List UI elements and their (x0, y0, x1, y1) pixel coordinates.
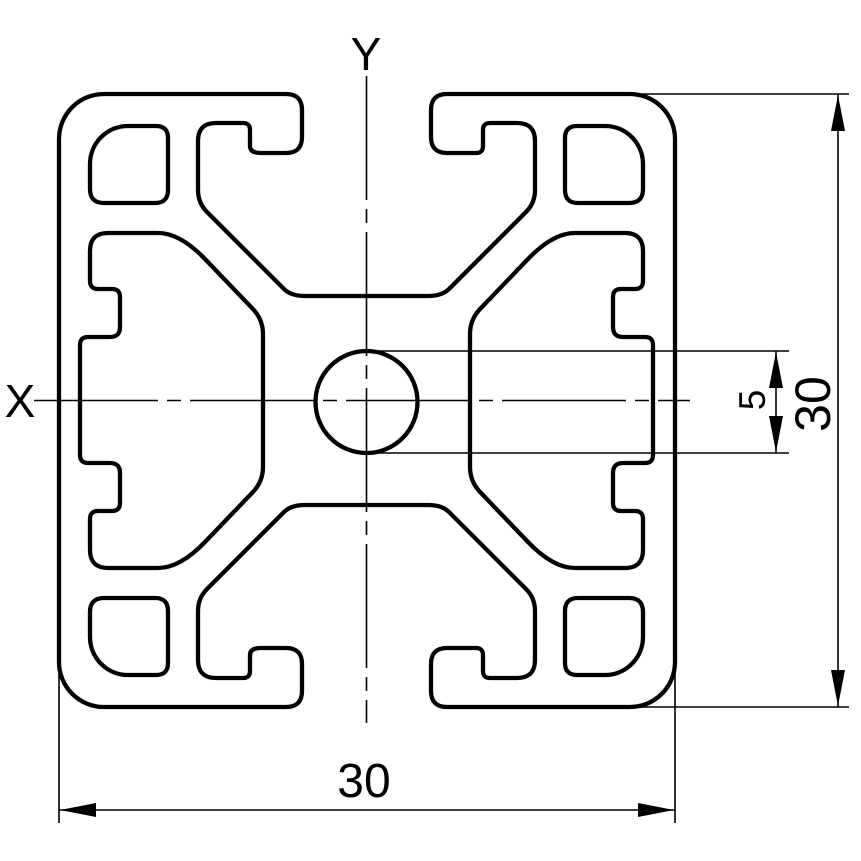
axis-label-x: X (5, 375, 36, 427)
extrusion-profile-drawing: 5 30 30 Y X (0, 0, 861, 861)
dimension-value-height: 30 (785, 376, 841, 432)
technical-drawing-page: 5 30 30 Y X (0, 0, 861, 861)
dimension-value-width: 30 (337, 755, 390, 808)
dimension-value-hole: 5 (732, 390, 773, 411)
axis-label-y: Y (351, 28, 382, 80)
